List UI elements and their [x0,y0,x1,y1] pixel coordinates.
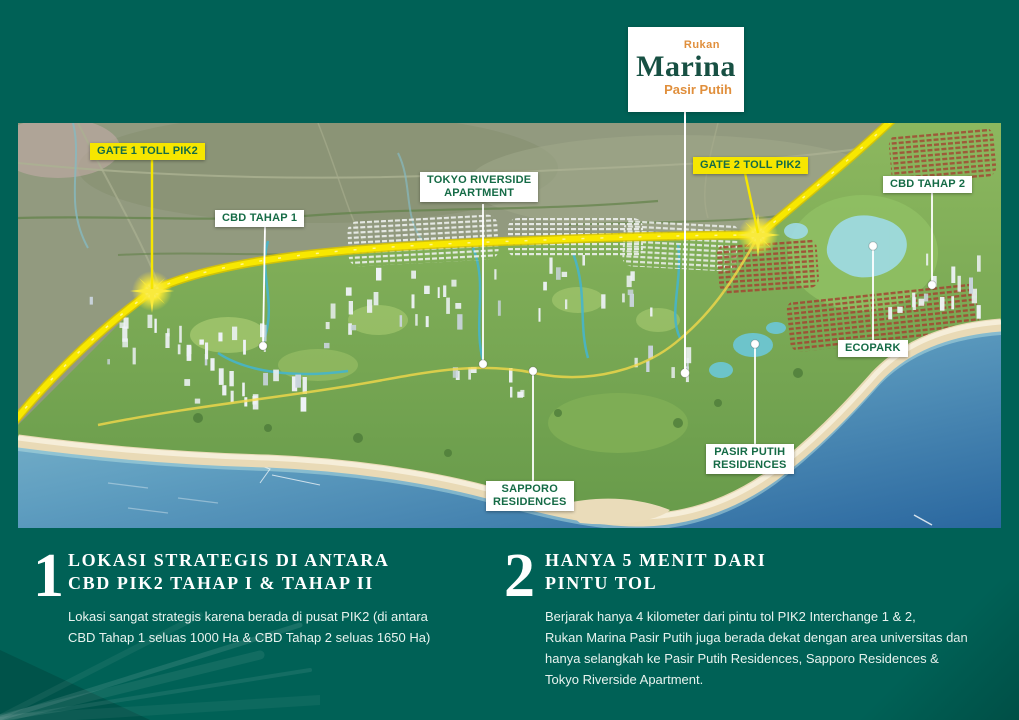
section-2-body: Berjarak hanya 4 kilometer dari pintu to… [545,606,968,690]
section-2-title: HANYA 5 MENIT DARI PINTU TOL [545,549,766,595]
section-1-body: Lokasi sangat strategis karena berada di… [68,606,430,648]
section-1-title: LOKASI STRATEGIS DI ANTARA CBD PIK2 TAHA… [68,549,390,595]
brochure-page: GATE 1 TOLL PIK2 CBD TAHAP 1 TOKYO RIVER… [0,0,1019,720]
masterplan-map: GATE 1 TOLL PIK2 CBD TAHAP 1 TOKYO RIVER… [18,123,1001,528]
logo-connector-line [684,112,686,373]
logo-marina: Marina [636,51,736,83]
section-1-number: 1 [33,553,64,600]
label-tokyo-riverside-apartment: TOKYO RIVERSIDE APARTMENT [420,172,538,202]
label-cbd-tahap-2: CBD TAHAP 2 [883,176,972,193]
label-sapporo-residences: SAPPORO RESIDENCES [486,481,574,511]
section-2-number: 2 [504,553,535,600]
label-cbd-tahap-1: CBD TAHAP 1 [215,210,304,227]
logo-pasir-putih: Pasir Putih [664,83,732,97]
label-gate2-toll-pik2: GATE 2 TOLL PIK2 [693,157,808,174]
label-gate1-toll-pik2: GATE 1 TOLL PIK2 [90,143,205,160]
label-ecopark: ECOPARK [838,340,908,357]
logo-card: Rukan Marina Pasir Putih [628,27,744,112]
label-pasir-putih-residences: PASIR PUTIH RESIDENCES [706,444,794,474]
